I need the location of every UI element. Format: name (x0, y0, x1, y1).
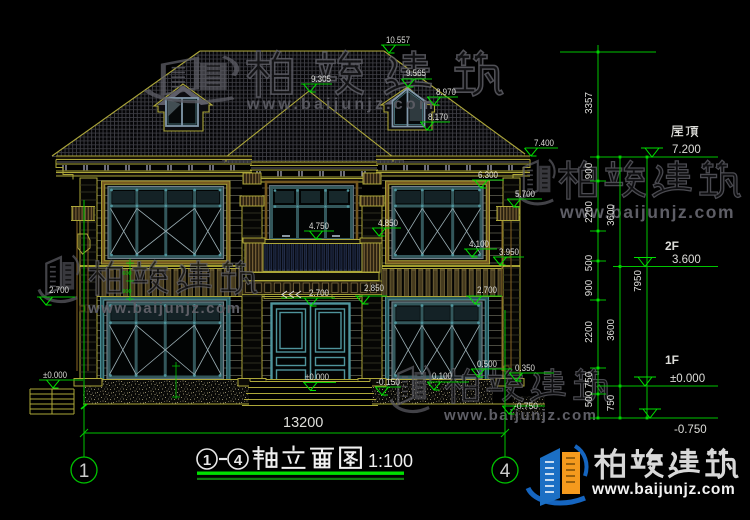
svg-text:www.baijunjz.com: www.baijunjz.com (591, 481, 735, 498)
svg-text:900: 900 (584, 279, 595, 296)
svg-text:2200: 2200 (584, 201, 595, 223)
svg-text:www.baijunjz.com: www.baijunjz.com (246, 96, 436, 113)
svg-text:8.170: 8.170 (428, 112, 448, 122)
svg-text:4.850: 4.850 (378, 218, 398, 228)
svg-text:13200: 13200 (283, 415, 323, 431)
svg-text:0.500: 0.500 (477, 359, 497, 369)
svg-text:7.400: 7.400 (534, 138, 554, 148)
svg-text:2.850: 2.850 (364, 283, 384, 293)
svg-text:500: 500 (584, 390, 595, 407)
svg-text:4.100: 4.100 (469, 239, 489, 249)
svg-text:9.305: 9.305 (311, 74, 331, 84)
svg-text:6.300: 6.300 (478, 170, 498, 180)
svg-text:2F: 2F (665, 239, 679, 253)
svg-text:1F: 1F (665, 353, 679, 367)
svg-text:2.700: 2.700 (477, 285, 497, 295)
svg-text:3.950: 3.950 (499, 247, 519, 257)
svg-text:600: 600 (122, 271, 131, 277)
svg-text:4: 4 (500, 461, 511, 482)
svg-text:1: 1 (79, 461, 90, 482)
svg-text:4: 4 (234, 452, 243, 469)
svg-text:1: 1 (203, 452, 211, 469)
svg-text:-0.750: -0.750 (674, 424, 707, 436)
svg-text:750: 750 (606, 394, 617, 411)
svg-text:7950: 7950 (633, 270, 644, 292)
svg-text:3600: 3600 (606, 204, 617, 226)
svg-text:2.700: 2.700 (49, 285, 69, 295)
svg-text:±0.000: ±0.000 (305, 372, 329, 382)
svg-text:8.970: 8.970 (436, 87, 456, 97)
svg-text:500: 500 (584, 254, 595, 271)
svg-text:750: 750 (584, 371, 595, 388)
svg-text:7.200: 7.200 (672, 144, 701, 156)
svg-text:0.350: 0.350 (515, 363, 535, 373)
svg-text:2.700: 2.700 (309, 288, 329, 298)
svg-text:-0.750: -0.750 (514, 401, 538, 411)
svg-text:3357: 3357 (584, 92, 595, 114)
svg-text:10.557: 10.557 (386, 35, 410, 45)
svg-text:3600: 3600 (606, 319, 617, 341)
svg-text:0.100: 0.100 (432, 371, 452, 381)
svg-text:3.600: 3.600 (672, 254, 701, 266)
svg-text:900: 900 (584, 162, 595, 179)
svg-text:-0.150: -0.150 (376, 377, 400, 387)
svg-text:www.baijunjz.com: www.baijunjz.com (87, 300, 241, 317)
svg-text:±0.000: ±0.000 (43, 370, 67, 380)
svg-text:900: 900 (122, 289, 131, 295)
svg-text:1:100: 1:100 (368, 451, 413, 471)
svg-text:5.700: 5.700 (515, 189, 535, 199)
svg-text:4.750: 4.750 (309, 221, 329, 231)
svg-text:9.565: 9.565 (406, 68, 426, 78)
svg-text:±0.000: ±0.000 (670, 373, 705, 385)
svg-text:2200: 2200 (584, 321, 595, 343)
